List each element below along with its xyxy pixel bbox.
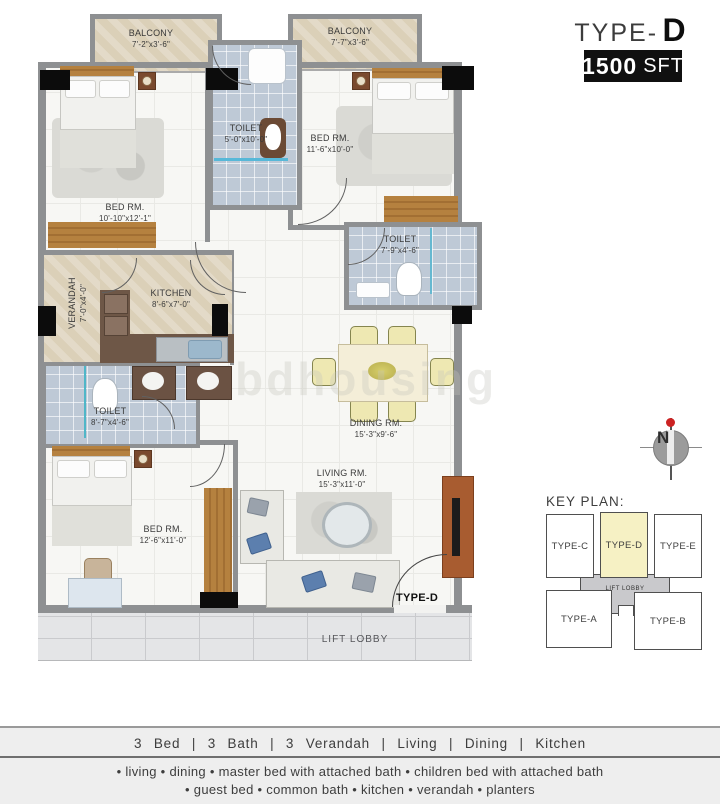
key-plan-unit-e: TYPE-E <box>654 514 702 578</box>
wall-black-segment <box>40 70 70 90</box>
wall-black-segment <box>452 306 472 324</box>
balcony-left-label: BALCONY 7'-2"x3'-6" <box>95 28 207 50</box>
dining-chair <box>430 358 454 386</box>
room-summary: 3 Bed | 3 Bath | 3 Verandah | Living | D… <box>0 736 720 751</box>
unit-label: TYPE-E <box>660 541 696 552</box>
cushion <box>351 572 376 593</box>
bedside-lamp <box>138 72 156 90</box>
compass-north-label: N <box>657 428 669 448</box>
area-number: 1500 <box>582 53 637 80</box>
key-plan-unit-a: TYPE-A <box>546 590 612 648</box>
key-plan-unit-d: TYPE-D <box>600 512 648 578</box>
dining-label: DINING RM. 15'-3"x9'-6" <box>330 418 422 440</box>
lift-lobby-label: LIFT LOBBY <box>300 634 410 645</box>
bed <box>60 76 136 168</box>
unit-label: TYPE-C <box>552 541 589 552</box>
room-dims: 15'-3"x9'-6" <box>330 430 422 440</box>
tv-screen <box>452 498 460 556</box>
bedside-lamp <box>352 72 370 90</box>
wall-black-segment <box>212 304 228 336</box>
bed <box>372 78 454 174</box>
room-dims: 7'-9"x4'-6" <box>362 246 438 256</box>
room-dims: 10'-10"x12'-1" <box>70 214 180 224</box>
room-dims: 7'-2"x3'-6" <box>95 40 207 50</box>
room-dims: 15'-3"x11'-0" <box>296 480 388 490</box>
room-name: BED RM. <box>292 133 368 145</box>
room-name: LIVING RM. <box>296 468 388 480</box>
wardrobe <box>384 196 458 222</box>
room-name: VERANDAH <box>67 253 79 353</box>
sofa-section <box>240 490 284 564</box>
sofa-section <box>266 560 400 608</box>
key-plan-lift-notch <box>618 605 634 616</box>
toilet-left-label: TOILET 8'-7"x4'-6" <box>72 406 148 428</box>
coffee-table <box>322 502 372 548</box>
room-name: BALCONY <box>95 28 207 40</box>
bed-top-right-label: BED RM. 11'-6"x10'-0" <box>292 133 368 155</box>
plan-title-prefix: TYPE- <box>574 19 658 47</box>
key-plan-heading: KEY PLAN: <box>546 494 625 509</box>
key-plan-unit-b: TYPE-B <box>634 592 702 650</box>
room-name: TOILET <box>210 123 282 135</box>
unit-label: TYPE-B <box>650 616 686 627</box>
stove <box>104 316 128 336</box>
verandah-label: VERANDAH 7'-0"x4'-0" <box>67 253 89 353</box>
wall-black-segment <box>442 66 474 90</box>
room-name: BED RM. <box>108 524 218 536</box>
features-line-1: • living • dining • master bed with atta… <box>0 763 720 782</box>
kitchen-label: KITCHEN 8'-6"x7'-0" <box>128 288 214 310</box>
footer-divider <box>0 756 720 758</box>
vanity-bowl <box>142 372 164 390</box>
floor-plan-page: BALCONY 7'-2"x3'-6" BALCONY 7'-7"x3'-6" … <box>0 0 720 804</box>
commode <box>396 262 422 296</box>
toilet-right-label: TOILET 7'-9"x4'-6" <box>362 234 438 256</box>
entrance-label: TYPE-D <box>396 592 452 604</box>
desk <box>68 578 122 608</box>
cushion <box>301 570 327 593</box>
room-dims: 7'-0"x4'-0" <box>79 253 89 353</box>
partition <box>233 440 238 612</box>
room-name: BED RM. <box>70 202 180 214</box>
bathtub <box>248 48 286 84</box>
key-plan-unit-c: TYPE-C <box>546 514 594 578</box>
pillow <box>57 460 90 478</box>
bed-headboard <box>372 68 452 78</box>
stove <box>104 294 128 314</box>
pillow <box>99 80 130 98</box>
room-dims: 5'-0"x10'-0" <box>210 135 282 145</box>
room-dims: 7'-7"x3'-6" <box>293 38 407 48</box>
bed-top-left-label: BED RM. 10'-10"x12'-1" <box>70 202 180 224</box>
sink-bowl <box>188 340 222 359</box>
room-name: DINING RM. <box>330 418 422 430</box>
room-name: KITCHEN <box>128 288 214 300</box>
room-dims: 12'-6"x11'-0" <box>108 536 218 546</box>
room-name: BALCONY <box>293 26 407 38</box>
tile-accent <box>214 158 288 161</box>
wash-basin <box>356 282 390 298</box>
pillow <box>377 82 411 100</box>
bed-headboard <box>52 446 130 456</box>
bedside-lamp <box>134 450 152 468</box>
toilet-left-room <box>42 362 200 448</box>
unit-label: TYPE-A <box>561 614 597 625</box>
plan-title: TYPE- D <box>560 12 700 52</box>
room-dims: 8'-7"x4'-6" <box>72 418 148 428</box>
balcony-right-label: BALCONY 7'-7"x3'-6" <box>293 26 407 48</box>
unit-label: TYPE-D <box>606 540 643 551</box>
table-centerpiece <box>368 362 396 380</box>
bed-bottom-label: BED RM. 12'-6"x11'-0" <box>108 524 218 546</box>
plan-title-letter: D <box>662 12 685 48</box>
room-dims: 11'-6"x10'-0" <box>292 145 368 155</box>
pillow <box>94 460 127 478</box>
toilet-top-label: TOILET 5'-0"x10'-0" <box>210 123 282 145</box>
blanket <box>60 129 136 168</box>
vanity-bowl <box>197 372 219 390</box>
features-line-2: • guest bed • common bath • kitchen • ve… <box>0 781 720 800</box>
living-label: LIVING RM. 15'-3"x11'-0" <box>296 468 388 490</box>
wall-black-segment <box>200 592 238 608</box>
dining-chair <box>312 358 336 386</box>
room-name: TOILET <box>362 234 438 246</box>
compass-north-dot <box>666 418 675 427</box>
cushion <box>247 497 270 517</box>
cushion <box>246 532 272 555</box>
area-badge: 1500 SFT <box>584 50 682 82</box>
bed-headboard <box>60 66 134 76</box>
dresser <box>48 222 156 248</box>
room-name: TOILET <box>72 406 148 418</box>
area-unit: SFT <box>643 55 684 78</box>
blanket <box>372 133 454 174</box>
room-dims: 8'-6"x7'-0" <box>128 300 214 310</box>
wall-black-segment <box>38 306 56 336</box>
